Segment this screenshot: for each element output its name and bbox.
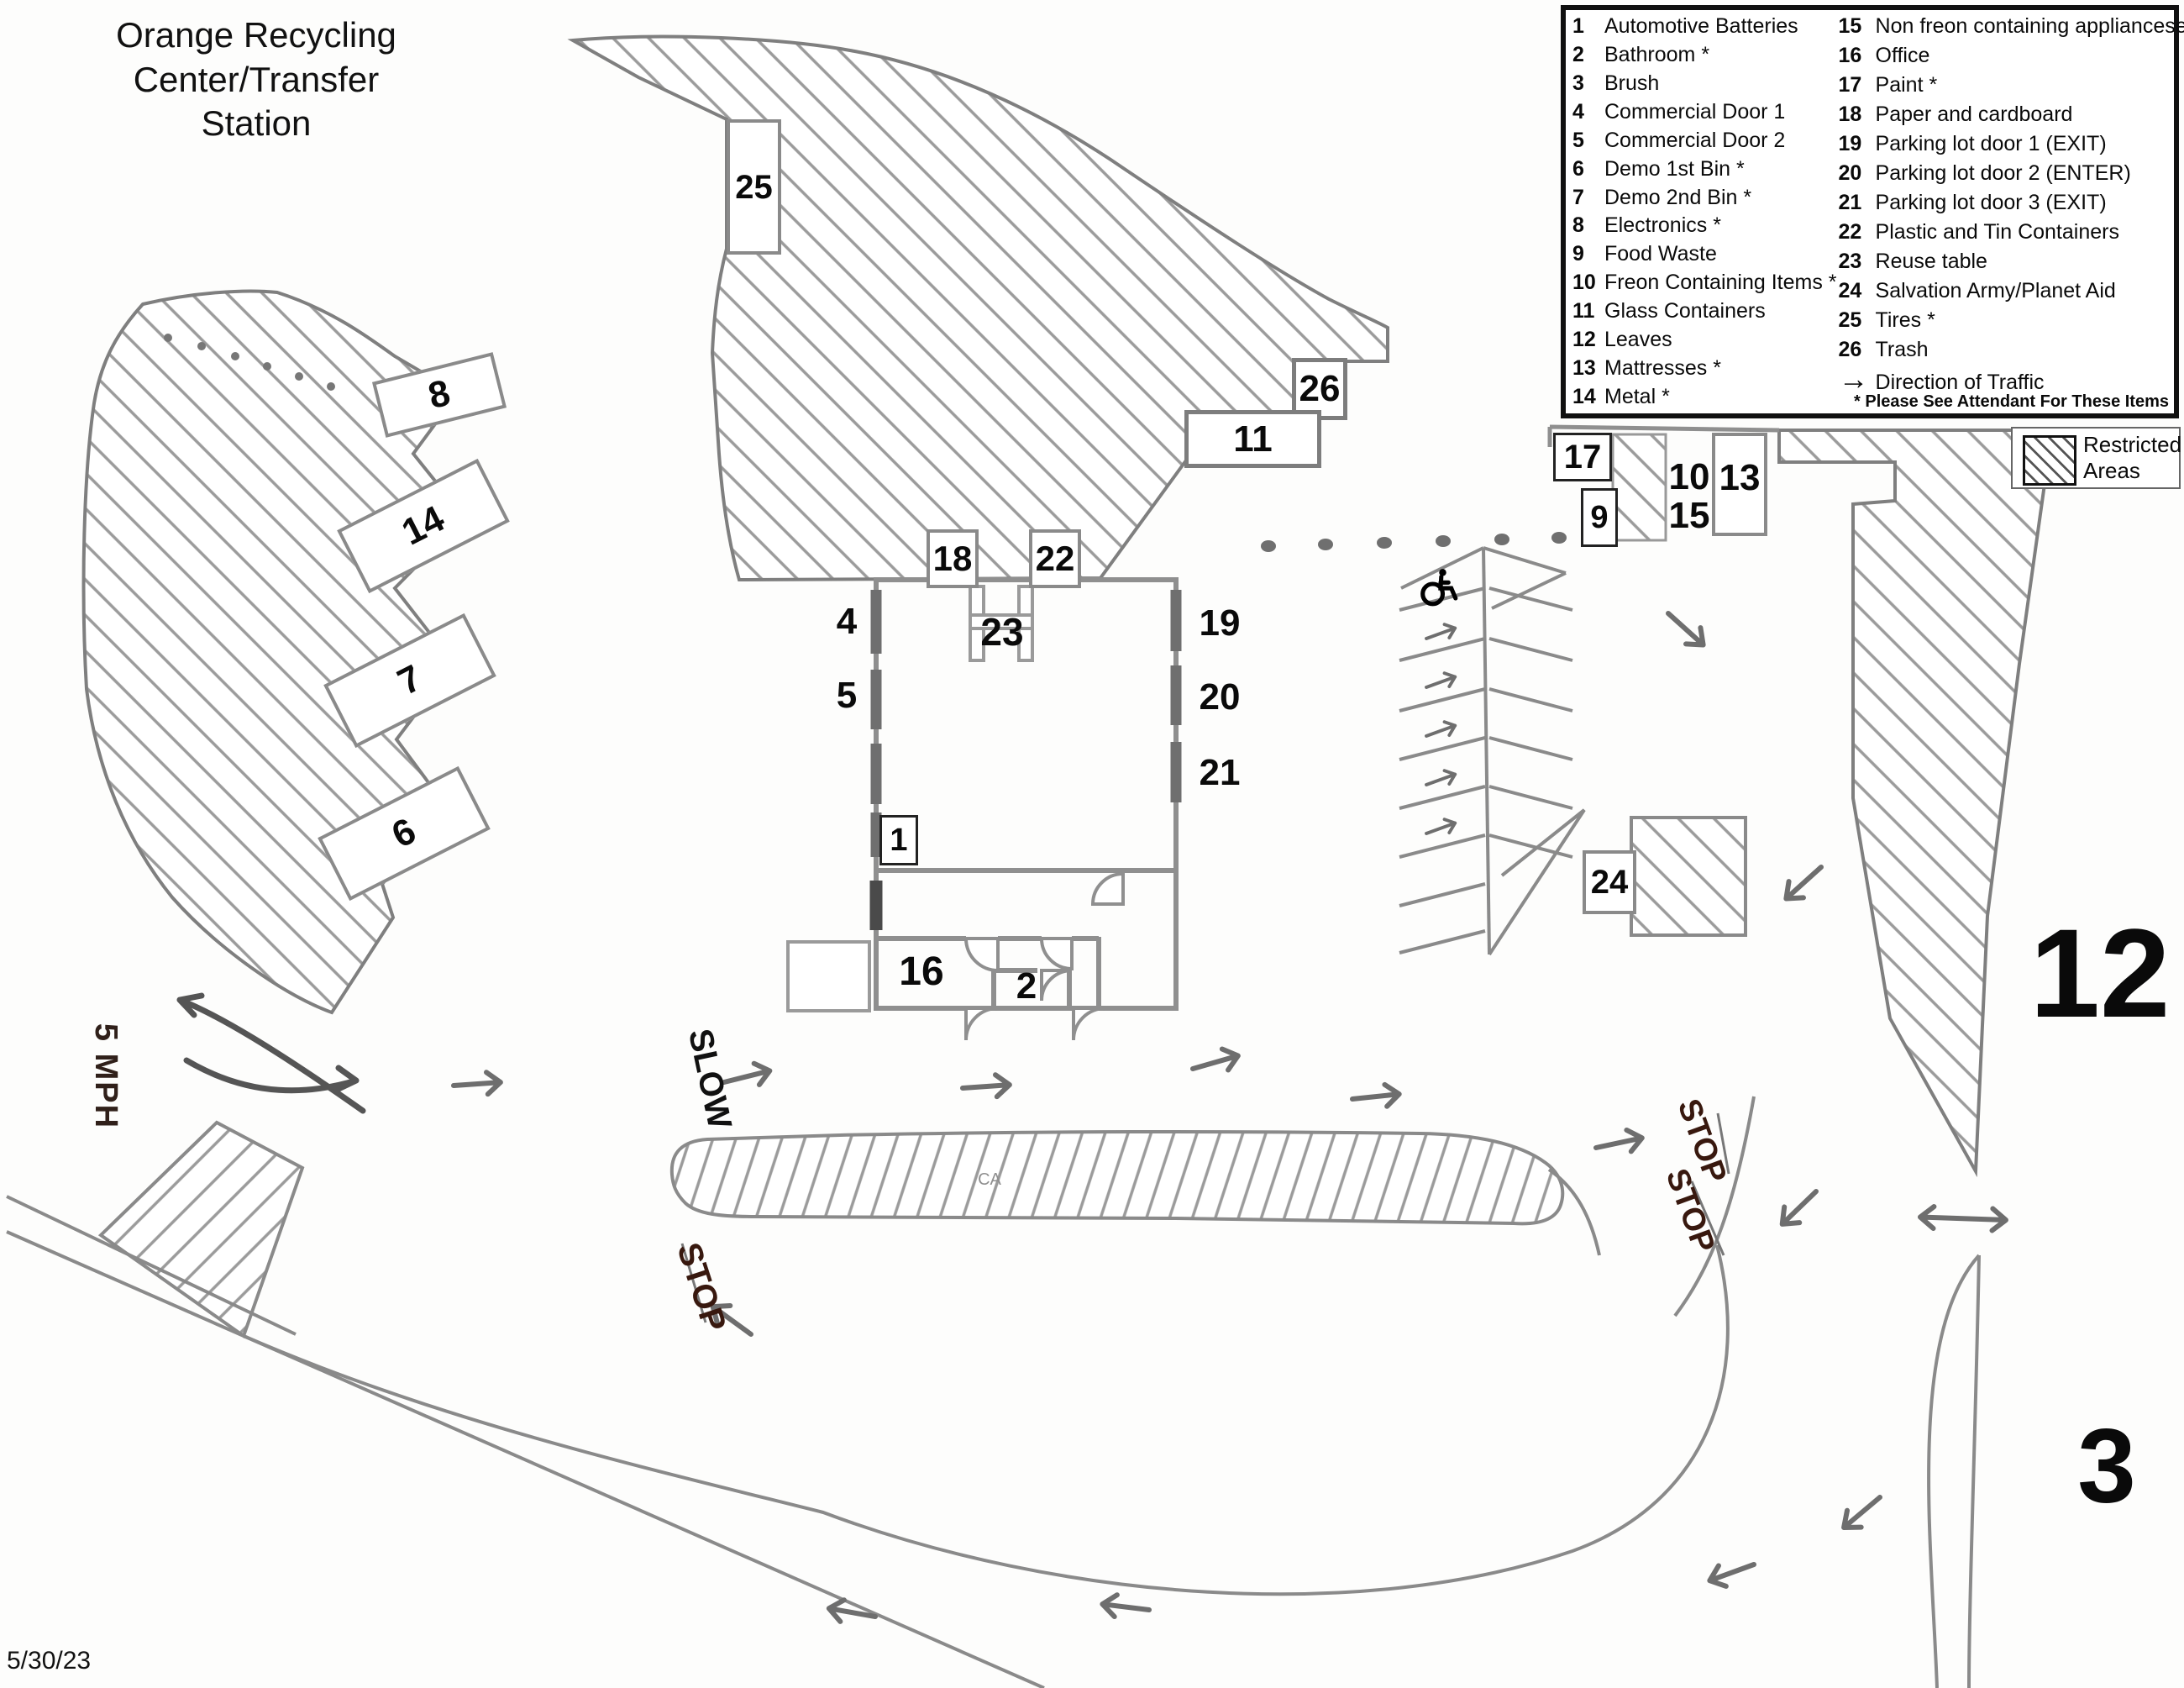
- legend-item-number: 12: [1572, 328, 1604, 352]
- legend-item: 1Automotive Batteries: [1572, 14, 1837, 43]
- legend-item-label: Non freon containing appliancese *: [1876, 14, 2184, 39]
- restricted-area-top-blob: [573, 37, 1388, 580]
- legend-item-number: 15: [1839, 14, 1876, 39]
- legend-item: 21Parking lot door 3 (EXIT): [1839, 191, 2184, 220]
- legend-item-number: 20: [1839, 161, 1876, 186]
- speed-limit-text: 5 MPH: [90, 1023, 122, 1129]
- legend-item-number: 8: [1572, 213, 1604, 238]
- legend-item-number: 25: [1839, 308, 1876, 333]
- parking-lot-stripes: [1399, 548, 1584, 954]
- legend-item-label: Commercial Door 2: [1604, 129, 1785, 153]
- legend-item: 10Freon Containing Items *: [1572, 271, 1837, 299]
- legend-item: 5Commercial Door 2: [1572, 129, 1837, 157]
- page-title-line1: Orange Recycling: [76, 13, 437, 58]
- legend-item-number: 22: [1839, 220, 1876, 245]
- road-median-hatched: [101, 1123, 302, 1336]
- legend-item-label: Electronics *: [1604, 213, 1721, 238]
- legend-item-label: Tires *: [1876, 308, 1935, 333]
- legend-item-number: 11: [1572, 299, 1604, 323]
- area-leaves: 12: [2030, 910, 2171, 1036]
- area-paper-cardboard: 18: [927, 529, 979, 588]
- legend-footnote: * Please See Attendant For These Items: [1854, 392, 2169, 412]
- area-non-freon-appliances: 15: [1669, 497, 1710, 534]
- legend-item: 17Paint *: [1839, 73, 2184, 103]
- legend-item-label: Bathroom *: [1604, 43, 1709, 67]
- door-commercial-1: 4: [837, 603, 857, 640]
- area-reuse-table: 23: [980, 613, 1023, 651]
- legend-item-number: 3: [1572, 71, 1604, 96]
- legend-item-label: Paper and cardboard: [1876, 103, 2073, 127]
- legend-item-number: 18: [1839, 103, 1876, 127]
- legend-item-number: 1: [1572, 14, 1604, 39]
- legend-item-number: 9: [1572, 242, 1604, 266]
- legend-item: 4Commercial Door 1: [1572, 100, 1837, 129]
- legend-item: 22Plastic and Tin Containers: [1839, 220, 2184, 250]
- legend-item: 16Office: [1839, 44, 2184, 73]
- traffic-direction-arrows: [180, 605, 2006, 1627]
- legend-item-label: Reuse table: [1876, 250, 1987, 274]
- area-plastic-tin: 22: [1029, 529, 1081, 588]
- area-freon-items: 10: [1669, 459, 1710, 496]
- legend-item: 3Brush: [1572, 71, 1837, 100]
- legend-item-label: Food Waste: [1604, 242, 1717, 266]
- legend-item: 15Non freon containing appliancese *: [1839, 14, 2184, 44]
- legend-item: 26Trash: [1839, 338, 2184, 367]
- legend-item-label: Leaves: [1604, 328, 1672, 352]
- legend-item: 12Leaves: [1572, 328, 1837, 356]
- legend-box: 1Automotive Batteries2Bathroom *3Brush4C…: [1561, 5, 2179, 418]
- traffic-island-hatched: [672, 1132, 1599, 1255]
- legend-item-number: 19: [1839, 132, 1876, 156]
- legend-item-number: 26: [1839, 338, 1876, 362]
- legend-item-label: Automotive Batteries: [1604, 14, 1798, 39]
- restricted-area-salvation-pad: [1631, 818, 1746, 935]
- door-parking-1: 19: [1200, 605, 1241, 642]
- legend-item-number: 6: [1572, 157, 1604, 181]
- accessible-parking-box: [786, 940, 871, 1012]
- legend-item-number: 7: [1572, 186, 1604, 210]
- legend-item-number: 10: [1572, 271, 1604, 295]
- legend-item-number: 13: [1572, 356, 1604, 381]
- page-title: Orange Recycling Center/Transfer Station: [76, 13, 437, 146]
- area-automotive-batteries: 1: [879, 815, 918, 865]
- door-commercial-2: 5: [837, 677, 857, 714]
- area-mattresses: 13: [1712, 433, 1767, 536]
- legend-item-label: Parking lot door 3 (EXIT): [1876, 191, 2107, 215]
- legend-item: 25Tires *: [1839, 308, 2184, 338]
- door-parking-3: 21: [1200, 755, 1241, 791]
- legend-item-label: Parking lot door 2 (ENTER): [1876, 161, 2131, 186]
- legend-column-right: 15Non freon containing appliancese *16Of…: [1837, 10, 2184, 413]
- legend-item-number: 24: [1839, 279, 1876, 303]
- legend-item: 9Food Waste: [1572, 242, 1837, 271]
- legend-item: 2Bathroom *: [1572, 43, 1837, 71]
- site-map-page: Orange Recycling Center/Transfer Station…: [0, 0, 2184, 1688]
- legend-column-left: 1Automotive Batteries2Bathroom *3Brush4C…: [1566, 10, 1837, 413]
- direction-of-traffic-arrow: →: [1839, 367, 1876, 392]
- legend-item-number: 4: [1572, 100, 1604, 124]
- legend-item: 24Salvation Army/Planet Aid: [1839, 279, 2184, 308]
- legend-item-label: Salvation Army/Planet Aid: [1876, 279, 2116, 303]
- island-ca-text: CA: [978, 1171, 1001, 1188]
- area-paint: 17: [1553, 433, 1612, 481]
- restricted-area-right-blob: [1779, 430, 2047, 1171]
- legend-item-label: Plastic and Tin Containers: [1876, 220, 2119, 245]
- legend-item-number: 14: [1572, 385, 1604, 409]
- area-salvation-army: 24: [1583, 850, 1636, 914]
- legend-item-number: 23: [1839, 250, 1876, 274]
- legend-item-label: Demo 2nd Bin *: [1604, 186, 1751, 210]
- legend-item-label: Mattresses *: [1604, 356, 1721, 381]
- area-glass-containers: 11: [1184, 410, 1321, 468]
- legend-item-number: 16: [1839, 44, 1876, 68]
- legend-item: 20Parking lot door 2 (ENTER): [1839, 161, 2184, 191]
- legend-item-label: Glass Containers: [1604, 299, 1766, 323]
- legend-item-number: 5: [1572, 129, 1604, 153]
- legend-item: 7Demo 2nd Bin *: [1572, 186, 1837, 214]
- restricted-area-small-strip: [1613, 434, 1666, 540]
- legend-item: 13Mattresses *: [1572, 356, 1837, 385]
- legend-item: 23Reuse table: [1839, 250, 2184, 279]
- legend-item-label: Paint *: [1876, 73, 1938, 97]
- legend-item: 8Electronics *: [1572, 213, 1837, 242]
- legend-item: 18Paper and cardboard: [1839, 103, 2184, 132]
- legend-item: 14Metal *: [1572, 385, 1837, 413]
- area-food-waste: 9: [1581, 488, 1618, 547]
- room-bathroom: 2: [1016, 968, 1037, 1005]
- legend-item-label: Commercial Door 1: [1604, 100, 1785, 124]
- page-title-line2: Center/Transfer Station: [76, 58, 437, 146]
- area-tires: 25: [727, 119, 781, 255]
- legend-item-number: 21: [1839, 191, 1876, 215]
- legend-item-label: Metal *: [1604, 385, 1670, 409]
- legend-item-label: Trash: [1876, 338, 1929, 362]
- restricted-hatch-swatch: [2023, 435, 2076, 486]
- legend-item: 19Parking lot door 1 (EXIT): [1839, 132, 2184, 161]
- room-office: 16: [899, 952, 943, 992]
- legend-item-label: Parking lot door 1 (EXIT): [1876, 132, 2107, 156]
- map-date: 5/30/23: [7, 1647, 91, 1675]
- legend-item: 11Glass Containers: [1572, 299, 1837, 328]
- legend-item-label: Demo 1st Bin *: [1604, 157, 1745, 181]
- restricted-areas-label: Restricted Areas: [2083, 432, 2181, 484]
- door-parking-2: 20: [1200, 679, 1241, 716]
- direction-of-traffic-label: Direction of Traffic: [1876, 371, 2045, 395]
- legend-item-number: 17: [1839, 73, 1876, 97]
- restricted-areas-key: Restricted Areas: [2011, 427, 2181, 489]
- area-brush: 3: [2077, 1414, 2136, 1519]
- legend-item: 6Demo 1st Bin *: [1572, 157, 1837, 186]
- legend-item-label: Office: [1876, 44, 1930, 68]
- legend-item-number: 2: [1572, 43, 1604, 67]
- legend-item-label: Freon Containing Items *: [1604, 271, 1837, 295]
- legend-item-label: Brush: [1604, 71, 1659, 96]
